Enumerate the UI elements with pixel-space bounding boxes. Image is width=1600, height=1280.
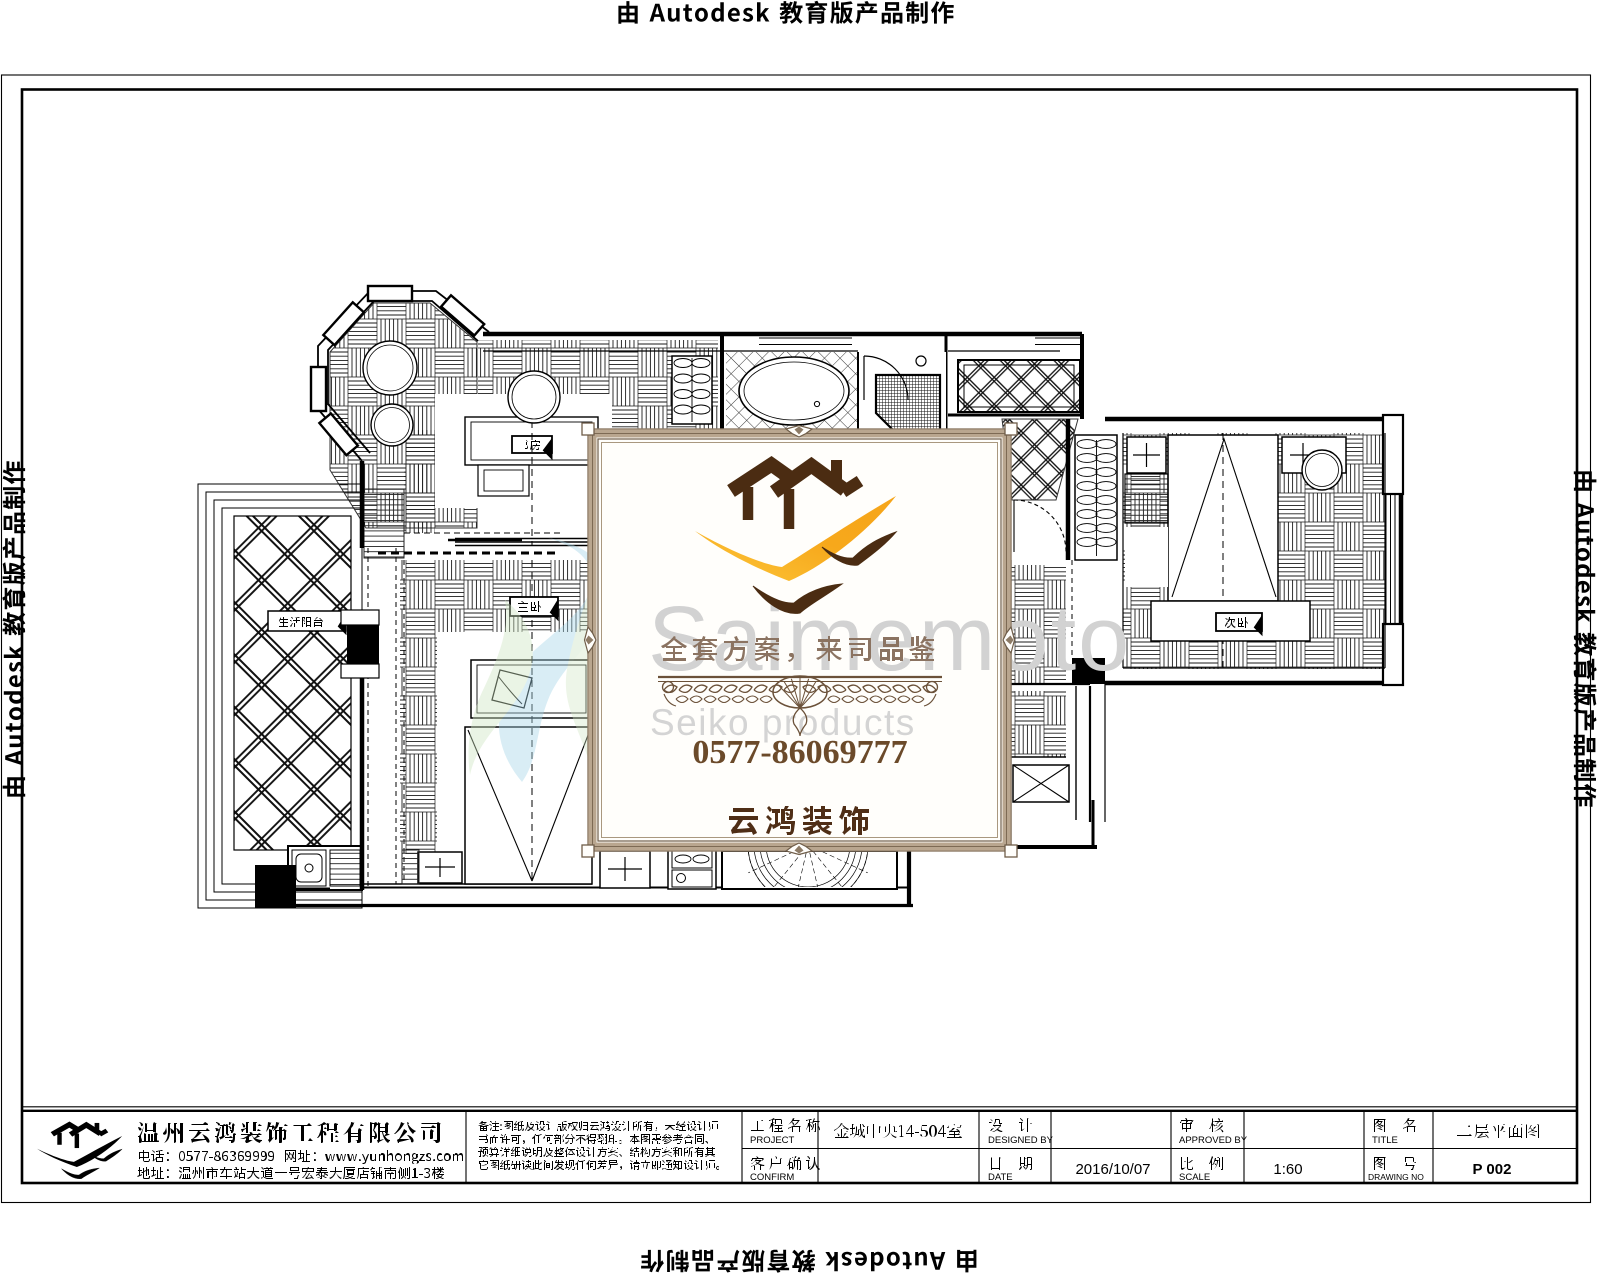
svg-text:0577-86069777: 0577-86069777 bbox=[692, 734, 907, 771]
svg-text:PROJECT: PROJECT bbox=[750, 1135, 795, 1146]
svg-text:DRAWING NO: DRAWING NO bbox=[1368, 1172, 1424, 1182]
svg-text:2016/10/07: 2016/10/07 bbox=[1075, 1161, 1150, 1178]
svg-text:SCALE: SCALE bbox=[1179, 1172, 1210, 1183]
svg-text:DATE: DATE bbox=[988, 1172, 1013, 1183]
svg-text:APPROVED BY: APPROVED BY bbox=[1179, 1135, 1248, 1146]
svg-text:1:60: 1:60 bbox=[1273, 1161, 1302, 1178]
svg-text:TITLE: TITLE bbox=[1372, 1135, 1398, 1146]
svg-text:DESIGNED BY: DESIGNED BY bbox=[988, 1135, 1054, 1146]
svg-text:CONFIRM: CONFIRM bbox=[750, 1172, 794, 1183]
svg-text:P 002: P 002 bbox=[1473, 1161, 1512, 1178]
